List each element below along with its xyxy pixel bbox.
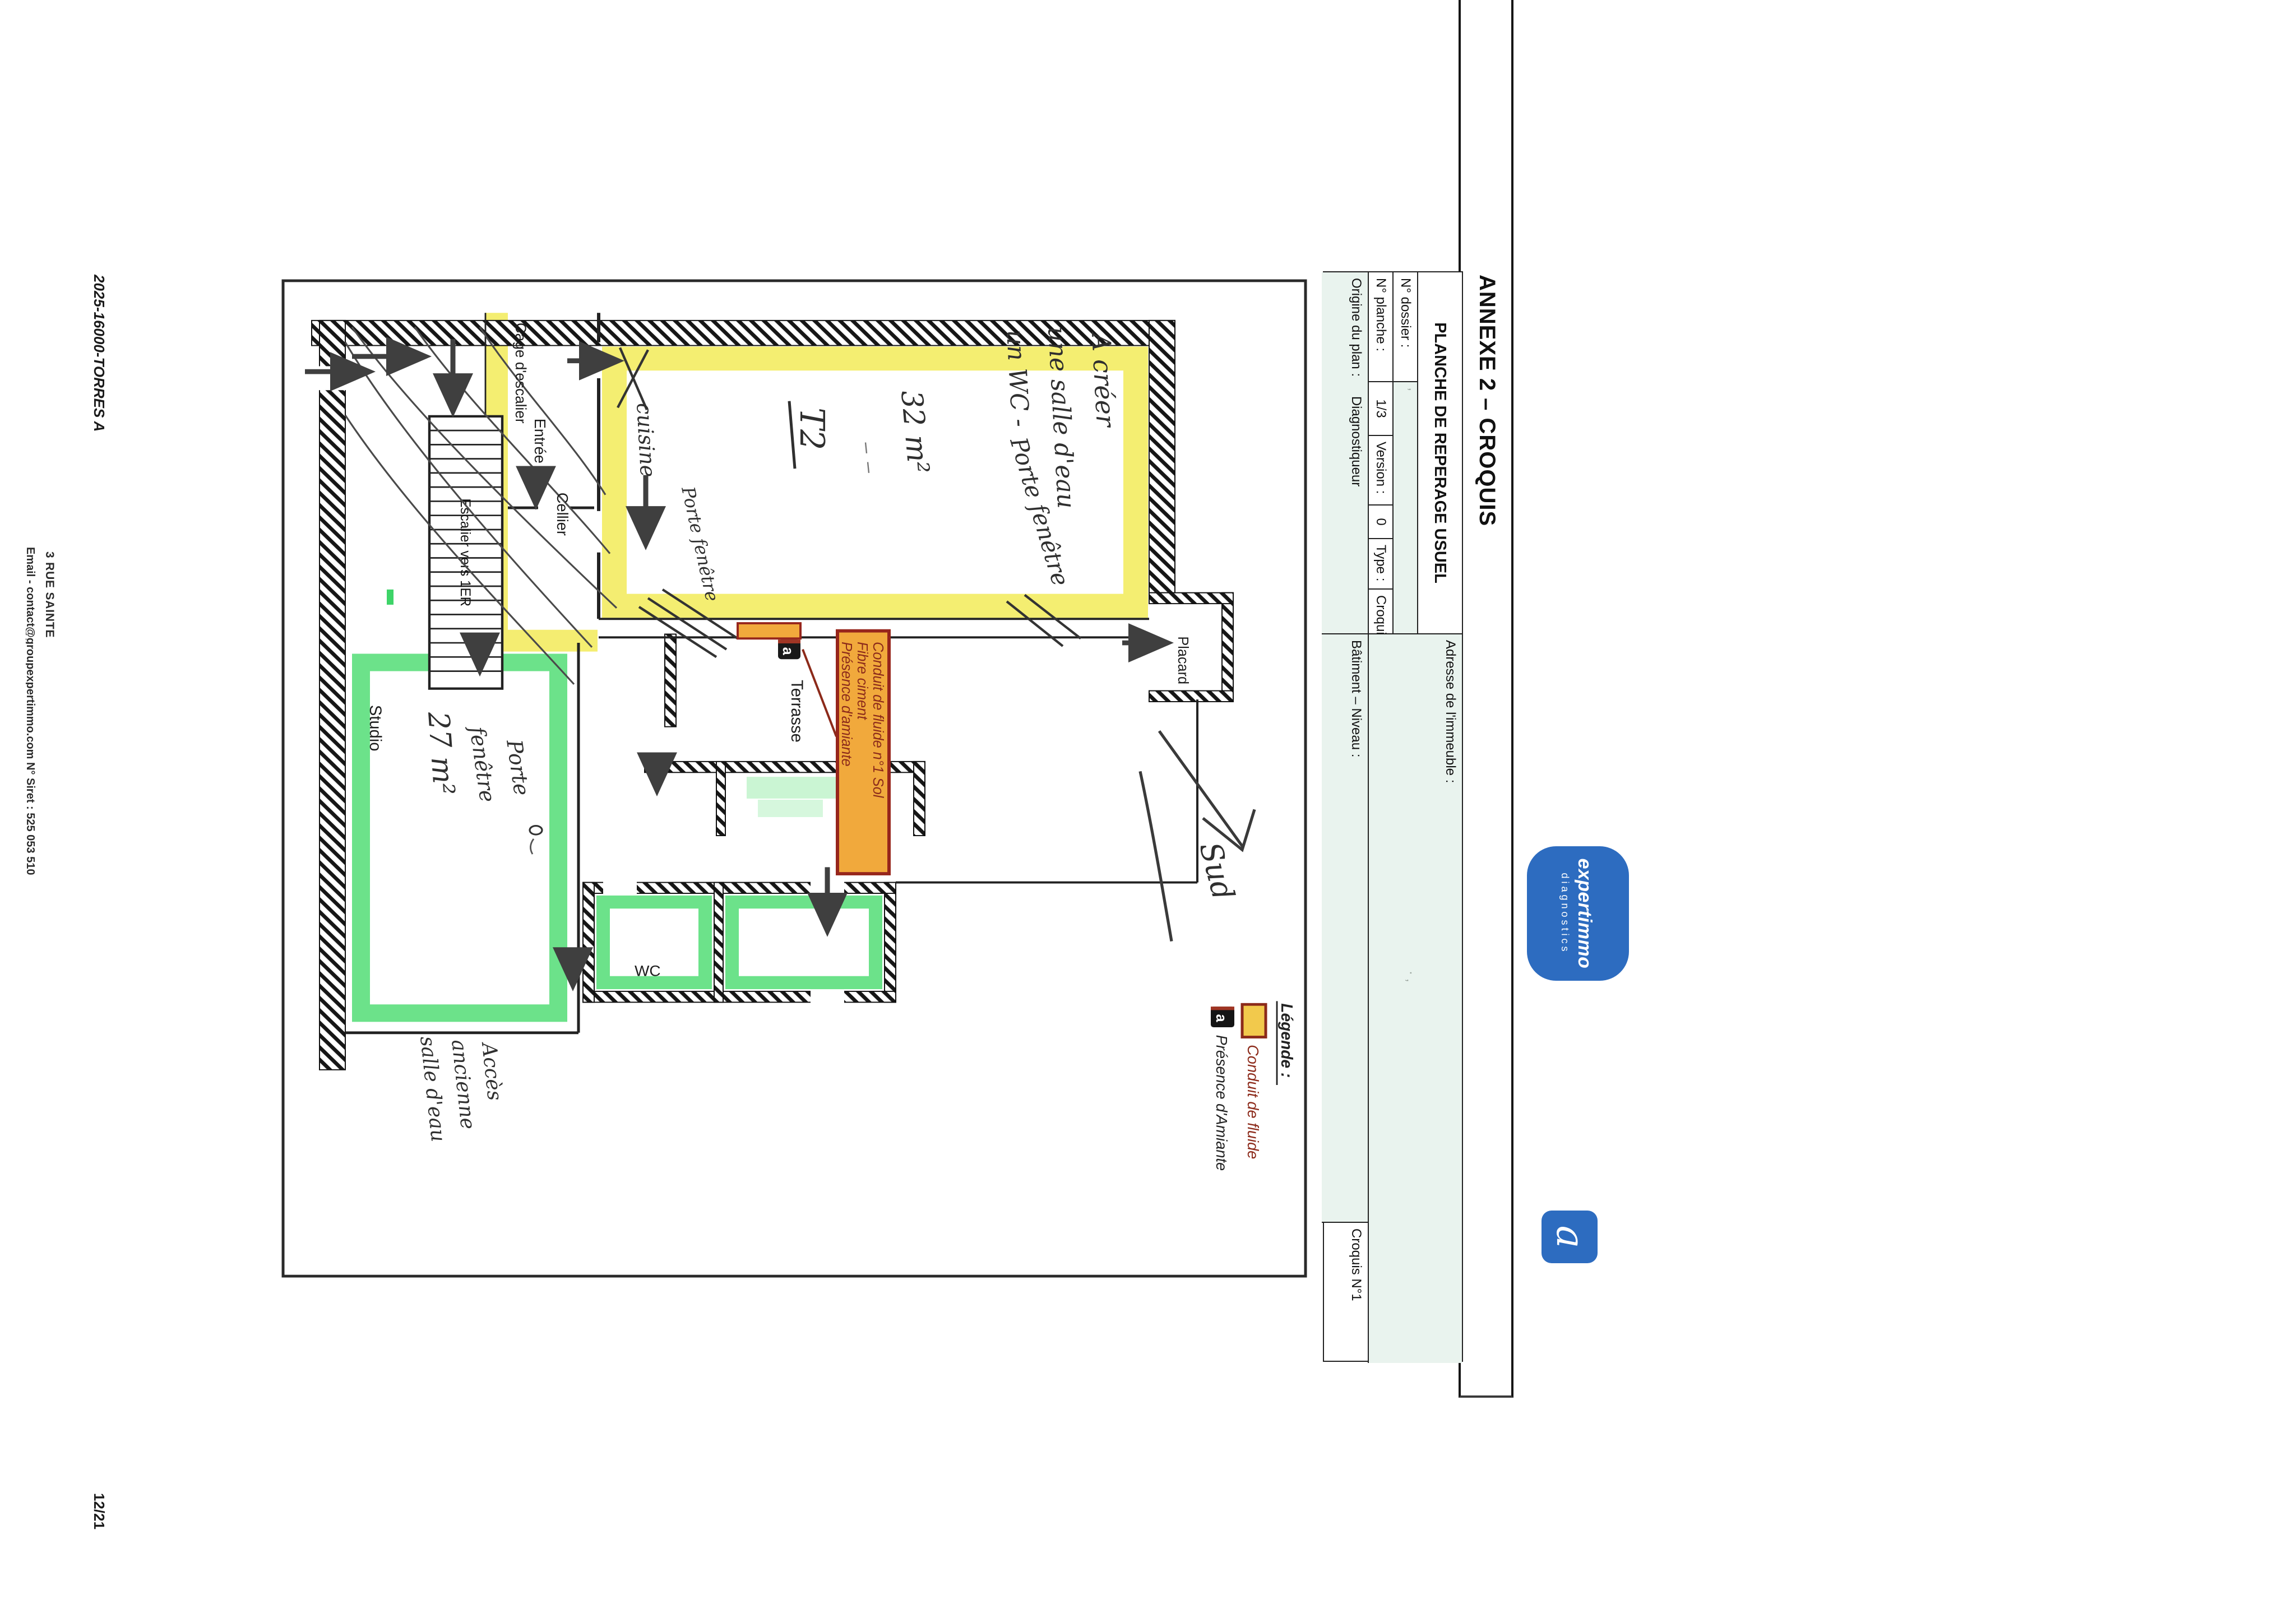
dossier-label: N° dossier : bbox=[1392, 272, 1417, 382]
annexe-title: ANNEXE 2 – CROQUIS bbox=[1461, 275, 1511, 526]
batiment-cell: Bâtiment – Niveau : bbox=[1322, 634, 1368, 1223]
legend-title: Légende : bbox=[1277, 1003, 1295, 1078]
conduit-label-box: Conduit de fluide n°1 Sol Fibre ciment P… bbox=[837, 631, 889, 874]
footer-contact: Email - contact@groupexpertimmo.com N° S… bbox=[26, 547, 36, 875]
origine-label: Origine du plan : bbox=[1349, 278, 1364, 377]
logo-text: expertimmo bbox=[1573, 859, 1596, 969]
room-label-wc: WC bbox=[635, 962, 661, 980]
note-type-t2: T2 bbox=[793, 407, 832, 450]
room-label-studio: Studio bbox=[366, 705, 385, 752]
version-value: 0 bbox=[1368, 506, 1392, 539]
origine-value: Diagnostiqueur bbox=[1349, 396, 1364, 486]
croquis-cell: Croquis N°1 bbox=[1322, 1223, 1368, 1363]
placard-wall bbox=[1149, 691, 1233, 702]
document: expertimmo diagnostics a ANNEXE 2 – CROQ… bbox=[0, 0, 2296, 1623]
type-value: Croquis bbox=[1368, 590, 1392, 634]
room-label-cellier: Cellier bbox=[554, 493, 571, 536]
note-a-creer-3: un WC - bbox=[1001, 329, 1034, 428]
room-label-entree: Entrée bbox=[531, 419, 549, 463]
planche-label: N° planche : bbox=[1368, 272, 1392, 382]
annexe-header-band: ANNEXE 2 – CROQUIS bbox=[1459, 0, 1513, 1398]
staircase: Escalier vers 1ER bbox=[429, 416, 502, 689]
type-label: Type : bbox=[1368, 539, 1392, 590]
logo-subtext: diagnostics bbox=[1560, 873, 1571, 954]
legend-item-conduit: Conduit de fluide bbox=[1244, 1045, 1262, 1159]
origine-cell: Origine du plan : Diagnostiqueur bbox=[1322, 272, 1368, 634]
note-a-creer-1: A créer bbox=[1086, 330, 1121, 429]
legend-item-amiante: Présence d'Amiante bbox=[1213, 1035, 1230, 1171]
batiment-label: Bâtiment – Niveau : bbox=[1349, 640, 1364, 757]
legend-conduit-swatch bbox=[1242, 1004, 1266, 1037]
address-value: · ‚ bbox=[1404, 971, 1419, 982]
dossier-mark: ’ bbox=[1398, 388, 1414, 391]
dossier-value: ’ bbox=[1392, 382, 1417, 634]
footer-reference: 2025-16000-TORRES A bbox=[91, 275, 108, 432]
asbestos-marker-badge: a bbox=[778, 639, 800, 659]
version-label: Version : bbox=[1368, 436, 1392, 506]
conduit-label-line2: Fibre ciment bbox=[854, 642, 870, 721]
address-cell: Adresse de l'immeuble : · ‚ bbox=[1368, 634, 1462, 1363]
title-block: PLANCHE DE REPERAGE USUEL Adresse de l'i… bbox=[1323, 271, 1463, 1362]
room-label-cage: Cage d'escalier bbox=[512, 323, 529, 424]
titleblock-header: PLANCHE DE REPERAGE USUEL bbox=[1417, 272, 1462, 634]
scanned-page: Amiante expertimmo diagnostics a ANNEXE … bbox=[0, 0, 2296, 1623]
note-cuisine: cuisine bbox=[632, 402, 661, 478]
footer-address: 3 RUE SAINTE bbox=[46, 551, 55, 638]
note-surface-studio: 27 m² bbox=[421, 710, 461, 796]
svg-text:a: a bbox=[780, 647, 795, 656]
brand-a-badge: a bbox=[1542, 1211, 1598, 1263]
conduit-marker bbox=[738, 623, 800, 638]
planche-value: 1/3 bbox=[1368, 382, 1392, 436]
footer-page-number: 12/21 bbox=[91, 1493, 108, 1529]
svg-text:a: a bbox=[1213, 1014, 1229, 1022]
placard-wall bbox=[1222, 593, 1233, 702]
room-label-terrasse: Terrasse bbox=[788, 680, 806, 743]
floor-plan: Escalier vers 1ER bbox=[281, 279, 1307, 1278]
room-label-placard: Placard bbox=[1175, 636, 1191, 684]
conduit-label-line1: Conduit de fluide n°1 Sol bbox=[870, 642, 886, 799]
placard-wall bbox=[1149, 593, 1233, 604]
address-label: Adresse de l'immeuble : bbox=[1443, 640, 1459, 783]
expertimmo-logo: expertimmo diagnostics bbox=[1527, 846, 1629, 981]
room-label-escalier: Escalier vers 1ER bbox=[457, 498, 473, 606]
conduit-label-line3: Présence d'amiante bbox=[839, 642, 854, 766]
